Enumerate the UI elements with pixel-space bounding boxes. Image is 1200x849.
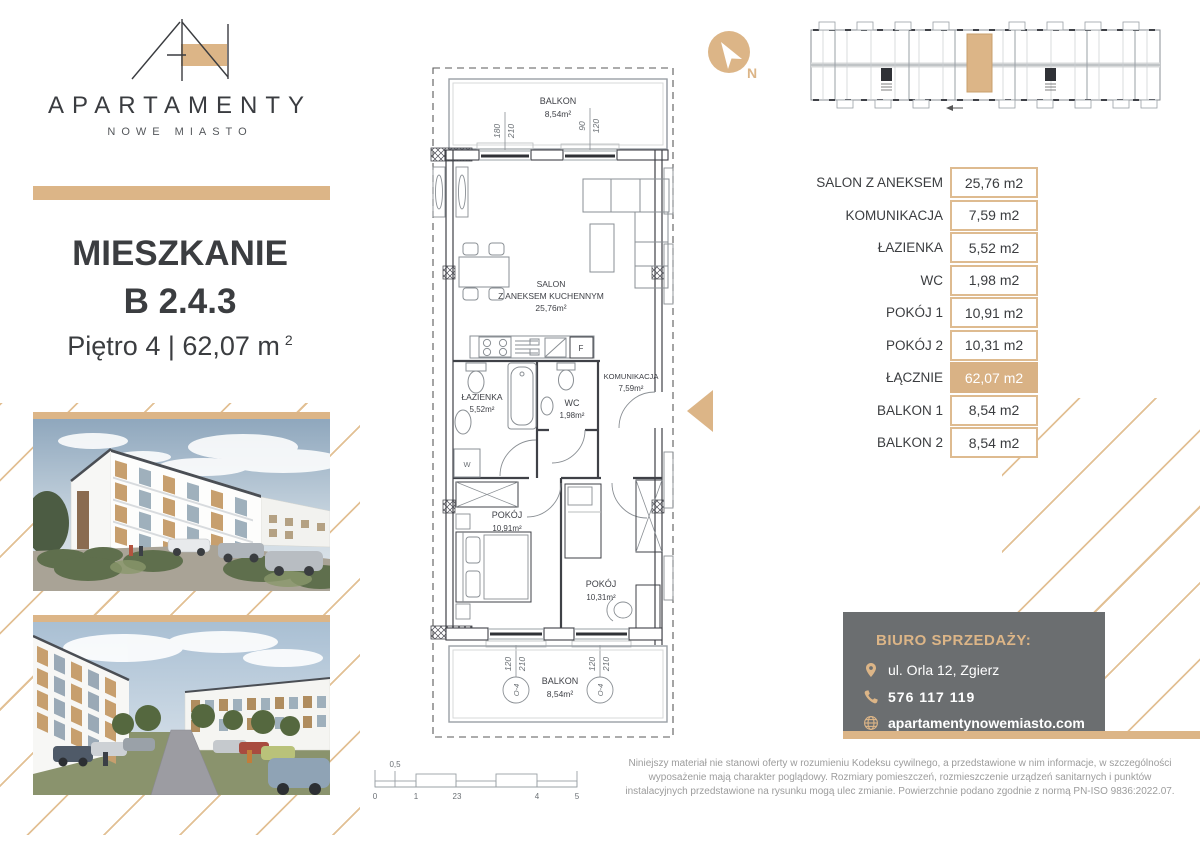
balcony-top-area: 8,54m²: [545, 109, 572, 119]
legal-disclaimer: Niniejszy materiał nie stanowi oferty w …: [620, 757, 1180, 798]
bathroom-label: ŁAZIENKA: [461, 392, 502, 402]
scale-label-5: 5: [575, 792, 580, 801]
entrance-arrow-icon: [687, 390, 713, 432]
table-row: BALKON 1 8,54 m2: [810, 396, 1038, 425]
hallway-label: KOMUNIKACJA: [604, 372, 660, 381]
row-label: ŁĄCZNIE: [886, 370, 943, 385]
row-value: 62,07 m2: [950, 362, 1038, 393]
row-label: KOMUNIKACJA: [845, 208, 943, 223]
dim-door-height: 210: [506, 124, 516, 139]
sales-office-heading: BIURO SPRZEDAŻY:: [876, 632, 1031, 649]
row-label: POKÓJ 2: [886, 338, 943, 353]
scale-label-1: 1: [414, 792, 419, 801]
floor-area-text: Piętro 4 | 62,07 m: [67, 331, 280, 361]
brand-logo-icon: [124, 15, 239, 85]
hallway-area: 7,59m²: [619, 384, 644, 393]
phone-number: 576 117 119: [888, 689, 975, 705]
row-label: POKÓJ 1: [886, 305, 943, 320]
apartment-number: B 2.4.3: [0, 282, 360, 322]
address-row: ul. Orla 12, Zgierz: [863, 662, 999, 678]
site-plan-arrow-icon: [946, 105, 953, 111]
dim-bwindow2-width: 120: [587, 657, 597, 671]
row-label: BALKON 1: [877, 403, 943, 418]
row-label: ŁAZIENKA: [878, 240, 943, 255]
phone-row: 576 117 119: [863, 689, 975, 705]
washer-label: W: [463, 460, 471, 469]
accent-divider-bar: [33, 186, 330, 200]
scale-label-4: 4: [535, 792, 540, 801]
map-scale-bar: 0,5 0 1 23 4 5: [372, 757, 582, 802]
table-row: SALON Z ANEKSEM 25,76 m2: [810, 168, 1038, 197]
table-row: POKÓJ 1 10,91 m2: [810, 298, 1038, 327]
brand-name: APARTAMENTY: [0, 92, 360, 120]
dim-door-width: 180: [492, 124, 502, 138]
room-areas-table: SALON Z ANEKSEM 25,76 m2 KOMUNIKACJA 7,5…: [810, 168, 1038, 461]
bathroom-area: 5,52m²: [470, 405, 495, 414]
table-row: BALKON 2 8,54 m2: [810, 428, 1038, 457]
photo-building-exterior-2: [33, 622, 330, 795]
salon-area: 25,76m²: [535, 303, 566, 313]
balcony-bottom-label: BALKON: [542, 676, 579, 686]
row-value: 25,76 m2: [950, 167, 1038, 198]
dim-bwindow1-height: 210: [517, 657, 527, 672]
table-row: KOMUNIKACJA 7,59 m2: [810, 201, 1038, 230]
location-pin-icon: [863, 662, 879, 678]
website-url: apartamentynowemiasto.com: [888, 715, 1085, 731]
photo-building-exterior-1: [33, 419, 330, 591]
salon-label-line1: SALON: [537, 279, 566, 289]
globe-icon: [863, 715, 879, 731]
row-value: 1,98 m2: [950, 265, 1038, 296]
dim-bwindow2-height: 210: [601, 657, 611, 672]
table-row: POKÓJ 2 10,31 m2: [810, 331, 1038, 360]
room1-label: POKÓJ: [492, 510, 523, 520]
contact-accent-bar: [843, 731, 1200, 739]
row-label: BALKON 2: [877, 435, 943, 450]
table-row: WC 1,98 m2: [810, 266, 1038, 295]
apartment-type-title: MIESZKANIE: [0, 234, 360, 274]
flyer-page: APARTAMENTY NOWE MIASTO MIESZKANIE B 2.4…: [0, 0, 1200, 849]
fridge-label: F: [579, 344, 584, 353]
dim-bwindow1-width: 120: [503, 657, 513, 671]
row-label: SALON Z ANEKSEM: [816, 175, 943, 190]
website-row: apartamentynowemiasto.com: [863, 715, 1085, 731]
scale-label-0: 0: [373, 792, 378, 801]
sqm-superscript: 2: [285, 332, 293, 348]
balcony-bottom-area: 8,54m²: [547, 689, 574, 699]
photo1-accent-bar: [33, 412, 330, 419]
salon-label-line2: Z ANEKSEM KUCHENNYM: [498, 291, 604, 301]
table-row: ŁAZIENKA 5,52 m2: [810, 233, 1038, 262]
scale-half-label: 0,5: [389, 760, 401, 769]
building-floor-overview-plan: [803, 16, 1168, 114]
floor-and-area: Piętro 4 | 62,07 m2: [0, 331, 360, 362]
dim-window-height: 120: [591, 119, 601, 133]
row-value: 10,91 m2: [950, 297, 1038, 328]
row-label: WC: [921, 273, 944, 288]
window-mark-1: O-4: [512, 684, 521, 697]
window-mark-2: O-4: [596, 684, 605, 697]
phone-icon: [863, 689, 879, 705]
room2-label: POKÓJ: [586, 579, 617, 589]
compass-north-label: N: [747, 65, 757, 81]
dim-window-width: 90: [577, 121, 587, 131]
room1-area: 10,91m²: [492, 524, 522, 533]
brand-subtitle: NOWE MIASTO: [0, 126, 360, 138]
apartment-floor-plan: BALKON 8,54m² 180 210 90 120: [425, 50, 715, 750]
row-value: 8,54 m2: [950, 427, 1038, 458]
scale-label-23: 23: [453, 792, 462, 801]
room2-area: 10,31m²: [586, 593, 616, 602]
photo2-accent-bar: [33, 615, 330, 622]
wc-label: WC: [565, 398, 580, 408]
highlighted-unit-marker: [967, 34, 992, 92]
sales-office-box: BIURO SPRZEDAŻY: ul. Orla 12, Zgierz 576…: [843, 612, 1105, 731]
row-value: 7,59 m2: [950, 200, 1038, 231]
row-value: 8,54 m2: [950, 395, 1038, 426]
wc-area: 1,98m²: [560, 411, 585, 420]
balcony-top-label: BALKON: [540, 96, 577, 106]
row-value: 5,52 m2: [950, 232, 1038, 263]
row-value: 10,31 m2: [950, 330, 1038, 361]
address-text: ul. Orla 12, Zgierz: [888, 662, 999, 678]
table-row-total: ŁĄCZNIE 62,07 m2: [810, 363, 1038, 392]
